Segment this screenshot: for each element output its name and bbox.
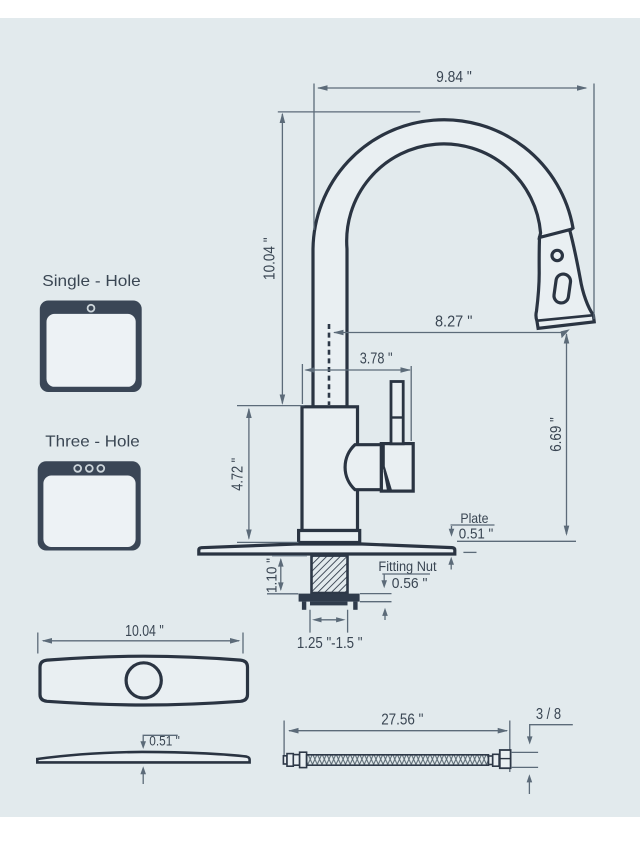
svg-text:27.56 ": 27.56 " xyxy=(381,712,423,729)
svg-text:10.04 ": 10.04 " xyxy=(262,237,279,280)
svg-text:Fitting Nut: Fitting Nut xyxy=(378,559,436,574)
svg-text:1.10 ": 1.10 " xyxy=(264,558,280,593)
svg-text:Plate: Plate xyxy=(460,510,488,526)
svg-text:0.51 ": 0.51 " xyxy=(149,734,180,749)
svg-text:10.04 ": 10.04 " xyxy=(125,623,164,640)
svg-text:3.78 ": 3.78 " xyxy=(360,351,393,368)
svg-text:0.56 ": 0.56 " xyxy=(392,575,428,592)
svg-text:0.51 ": 0.51 " xyxy=(459,526,494,543)
svg-text:3 / 8: 3 / 8 xyxy=(536,706,561,723)
svg-text:4.72 ": 4.72 " xyxy=(230,458,247,491)
svg-text:Three - Hole: Three - Hole xyxy=(45,433,140,450)
svg-text:8.27 ": 8.27 " xyxy=(435,314,473,331)
svg-text:1.25 "-1.5 ": 1.25 "-1.5 " xyxy=(297,635,363,652)
svg-text:9.84 ": 9.84 " xyxy=(436,69,472,86)
svg-text:6.69 ": 6.69 " xyxy=(548,417,565,452)
svg-text:Single - Hole: Single - Hole xyxy=(42,273,141,290)
